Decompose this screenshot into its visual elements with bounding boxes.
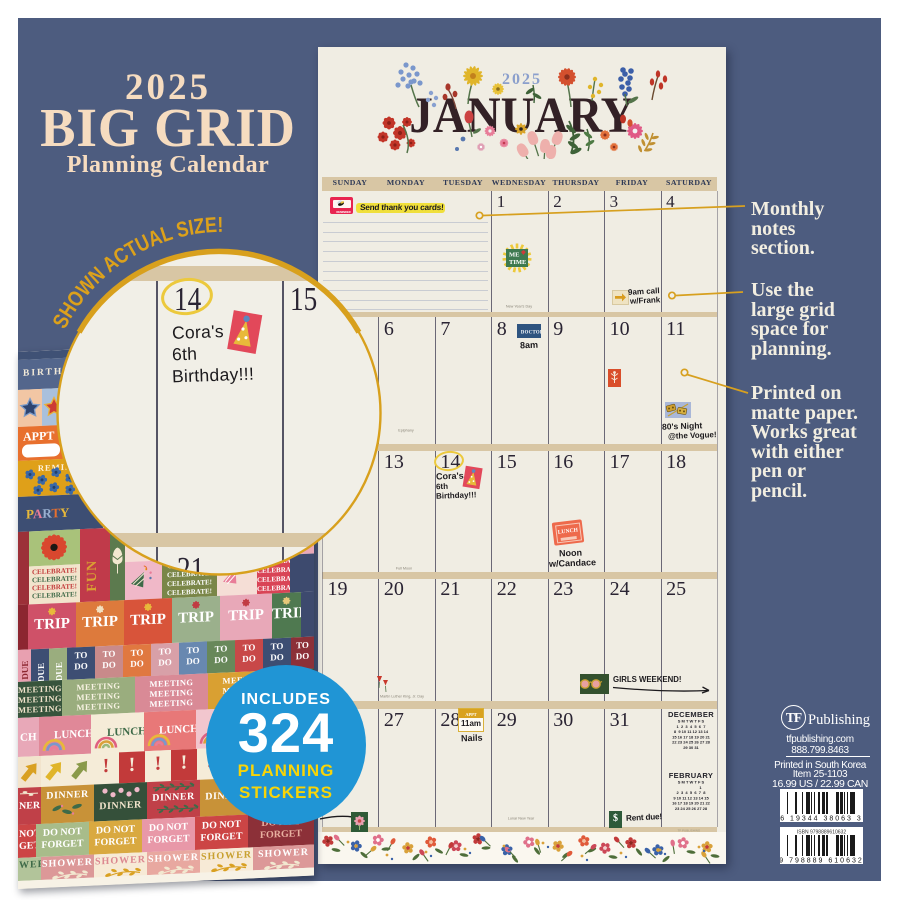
svg-text:TIME: TIME xyxy=(509,259,526,266)
svg-text:9 798889 610632: 9 798889 610632 xyxy=(780,858,863,865)
svg-text:ME: ME xyxy=(509,252,519,259)
svg-text:ISBN 9798889610632: ISBN 9798889610632 xyxy=(797,830,846,836)
svg-text:6 19344 38063 3: 6 19344 38063 3 xyxy=(780,816,863,823)
